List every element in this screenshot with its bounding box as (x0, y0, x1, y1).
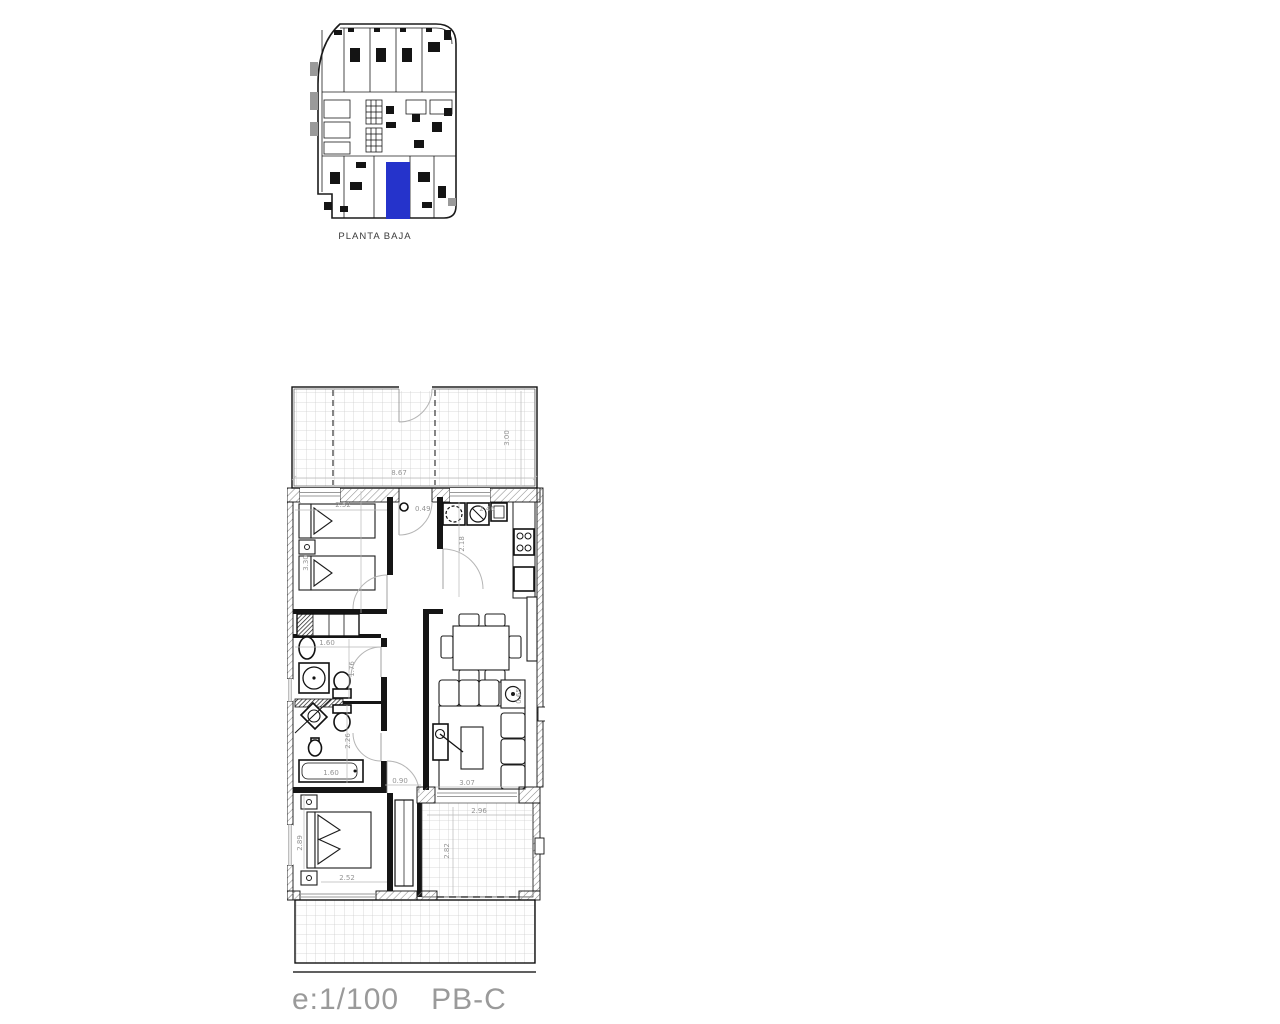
dim-terrace2-width: 2.96 (471, 807, 487, 815)
kitchen: 2.18 2.46 (443, 502, 535, 598)
plan-code-label: PB-C (431, 983, 507, 1016)
wardrobe-bedroom1 (395, 800, 413, 886)
bidet-icon (309, 738, 322, 756)
dim-terrace-top-width: 8.67 (391, 469, 407, 477)
sink-icon (299, 637, 315, 659)
sideboard (527, 597, 537, 661)
corridor: 0.90 (385, 761, 421, 793)
bedroom-2: 2.52 3.30 (295, 491, 387, 636)
dining-table (453, 626, 509, 670)
dim-bedroom1-width: 2.52 (339, 874, 355, 882)
terrace-door-opening (399, 385, 432, 391)
page-canvas: PLANTA BAJA (0, 0, 1280, 1024)
dim-entrance-door: 0.49 (415, 505, 431, 513)
shower-icon (299, 663, 329, 693)
kitchen-door (443, 549, 483, 589)
bathroom-1: 1.60 1.76 (295, 637, 381, 699)
oven-icon (514, 567, 534, 591)
nightstand (299, 540, 315, 554)
terrace-top: 8.67 3.00 (292, 385, 537, 488)
terrace-right: 2.96 2.82 (417, 787, 540, 900)
coffee-table (461, 727, 483, 769)
terrace-bottom (287, 891, 535, 963)
bathroom-2: 2.26 1.60 (295, 699, 381, 783)
dim-bathtub-length: 1.60 (323, 769, 339, 777)
overview-title: PLANTA BAJA (300, 231, 450, 242)
highlighted-unit (386, 162, 410, 219)
dim-kitchen-width: 2.46 (479, 505, 495, 513)
overview-svg (310, 22, 460, 224)
dim-terrace-top-depth: 3.00 (503, 430, 511, 446)
dining-set (441, 614, 521, 682)
living-room: 3.07 0.65 (433, 597, 537, 789)
dim-side-table: 0.65 (515, 688, 523, 704)
footer-divider (293, 971, 536, 973)
floor-plan-svg: 8.67 3.00 0.49 (287, 383, 545, 975)
stairs-icon (366, 100, 382, 152)
toilet-icon (333, 705, 351, 731)
nightstand (301, 795, 317, 809)
dim-bath2-depth: 2.26 (344, 733, 352, 749)
dim-living-width: 3.07 (459, 779, 475, 787)
door-symbol-icon (400, 503, 408, 511)
building-overview (310, 22, 460, 224)
dim-bath1-depth: 1.76 (348, 661, 356, 677)
scale-label: e:1/100 (292, 983, 399, 1016)
kitchen-appliance-row (443, 503, 507, 525)
apartment-floor-plan: 8.67 3.00 0.49 (287, 383, 545, 975)
double-bed (307, 812, 371, 868)
dim-hall-width: 0.90 (392, 777, 408, 785)
dim-terrace2-depth: 2.82 (443, 843, 451, 859)
dim-kitchen-depth: 2.18 (458, 536, 466, 552)
dim-bedroom2-depth: 3.30 (302, 555, 310, 571)
dim-bedroom2-width: 2.52 (335, 501, 351, 509)
entrance-door: 0.49 (399, 502, 432, 535)
master-bedroom: 2.52 2.89 (296, 795, 413, 886)
dim-bedroom1-depth: 2.89 (296, 835, 304, 851)
bath2-door (353, 733, 381, 761)
stove-icon (514, 529, 534, 555)
kitchen-counter (513, 502, 535, 598)
twin-bed-1 (299, 504, 375, 538)
nightstand (301, 871, 317, 885)
wardrobe-bedroom2 (297, 614, 359, 636)
footer: e:1/100PB-C (292, 983, 507, 1017)
dim-bath1-width: 1.60 (319, 639, 335, 647)
